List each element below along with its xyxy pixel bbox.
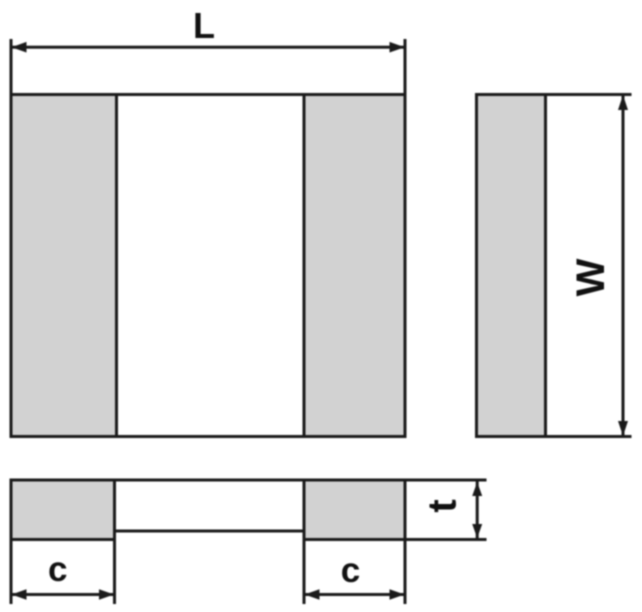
svg-text:c: c: [341, 551, 360, 590]
svg-text:c: c: [48, 550, 67, 589]
svg-text:W: W: [569, 258, 613, 296]
svg-text:t: t: [421, 499, 465, 512]
svg-text:L: L: [193, 5, 215, 46]
